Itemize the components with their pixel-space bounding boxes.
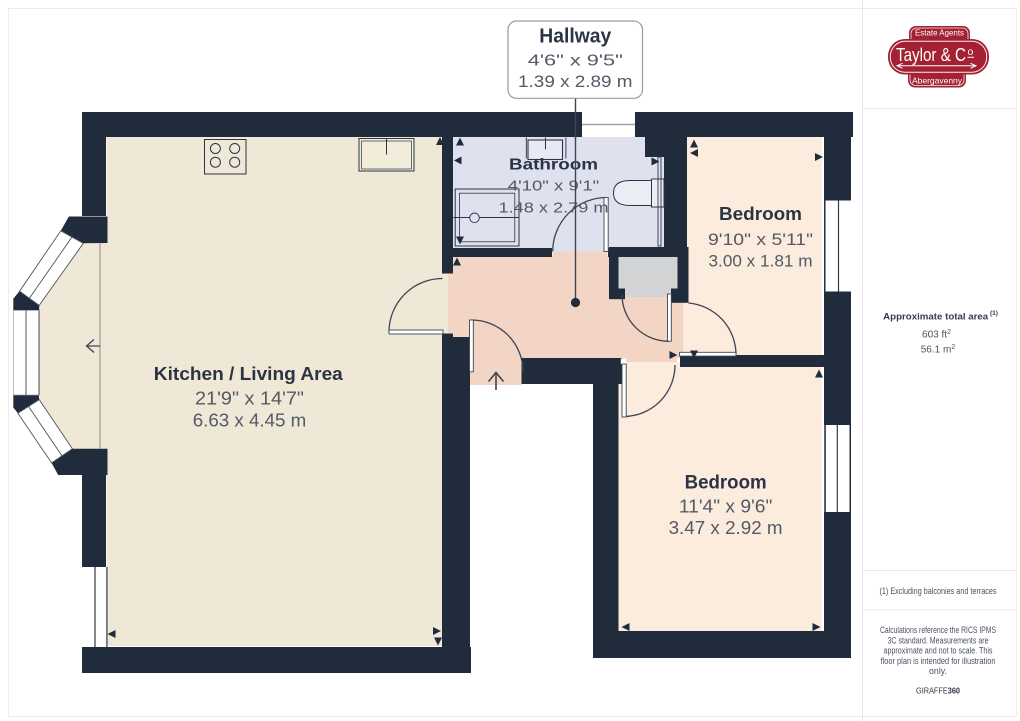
svg-text:Bedroom: Bedroom (685, 471, 767, 493)
svg-text:Estate Agents: Estate Agents (915, 28, 964, 38)
svg-text:6.63 x 4.45 m: 6.63 x 4.45 m (193, 409, 307, 430)
svg-text:4'10" x 9'1": 4'10" x 9'1" (508, 177, 600, 194)
svg-text:3C standard. Measurements are: 3C standard. Measurements are (888, 635, 989, 645)
svg-text:9'10" x 5'11": 9'10" x 5'11" (708, 230, 813, 249)
svg-text:603 ft2: 603 ft2 (922, 329, 951, 341)
svg-text:1.39 x 2.89 m: 1.39 x 2.89 m (518, 72, 633, 91)
svg-text:1.48 x 2.79 m: 1.48 x 2.79 m (499, 200, 609, 217)
svg-text:(1): (1) (990, 310, 998, 317)
svg-text:4'6" x 9'5": 4'6" x 9'5" (528, 52, 623, 69)
svg-text:GIRAFFE360: GIRAFFE360 (916, 686, 960, 696)
svg-text:21'9" x 14'7": 21'9" x 14'7" (195, 388, 304, 409)
svg-text:56.1 m2: 56.1 m2 (921, 344, 956, 356)
svg-text:Taylor & C: Taylor & C (896, 45, 966, 65)
svg-text:3.00 x 1.81 m: 3.00 x 1.81 m (709, 251, 813, 270)
svg-text:Calculations reference the RIC: Calculations reference the RICS IPMS (880, 625, 996, 635)
svg-text:Bathroom: Bathroom (509, 157, 598, 174)
svg-text:floor plan is intended for ill: floor plan is intended for illustration (881, 656, 996, 666)
svg-text:only.: only. (929, 666, 947, 676)
svg-text:Bedroom: Bedroom (719, 204, 802, 225)
svg-text:Hallway: Hallway (539, 26, 612, 48)
svg-text:Kitchen / Living Area: Kitchen / Living Area (154, 364, 344, 384)
svg-text:Approximate total area: Approximate total area (883, 312, 989, 322)
svg-text:(1) Excluding balconies and te: (1) Excluding balconies and terraces (880, 586, 997, 596)
svg-text:3.47 x 2.92 m: 3.47 x 2.92 m (669, 517, 783, 538)
svg-text:Abergavenny: Abergavenny (912, 76, 963, 86)
svg-text:11'4" x 9'6": 11'4" x 9'6" (679, 496, 773, 517)
svg-text:o: o (968, 46, 974, 58)
svg-text:approximate and not to scale.: approximate and not to scale. This (884, 646, 993, 656)
